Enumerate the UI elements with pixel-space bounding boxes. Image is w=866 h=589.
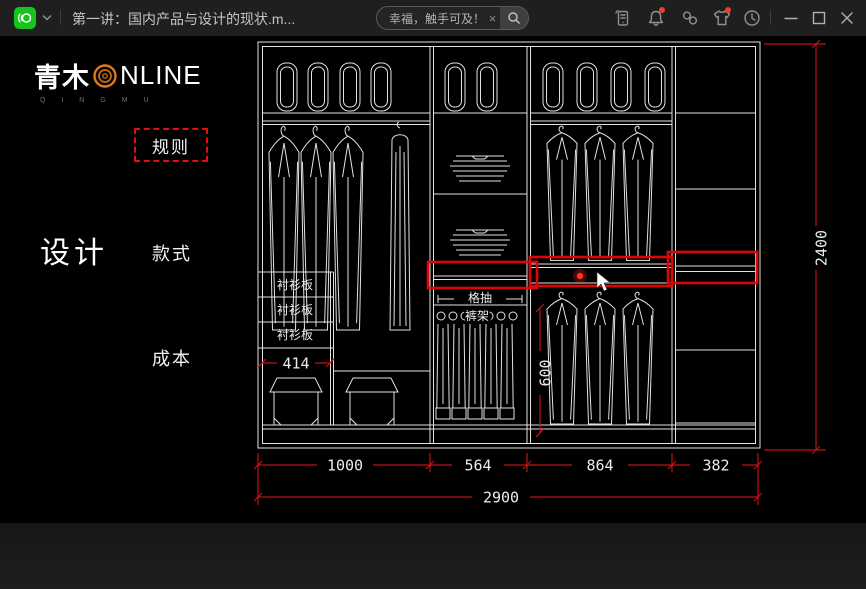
titlebar-divider (770, 10, 771, 25)
window-titlebar: 第一讲：国内产品与设计的现状.m... 幸福，触手可及！ × (0, 0, 866, 37)
brand-text-latin: NLINE (120, 60, 202, 91)
titlebar-divider (60, 10, 61, 25)
search-icon (507, 11, 521, 25)
brand-logo: 青木 NLINE (34, 56, 202, 95)
search-input[interactable]: 幸福，触手可及！ (377, 10, 485, 27)
brand-text-cn: 青木 (34, 56, 90, 95)
menu-design-label: 设计 (40, 228, 108, 272)
minimize-button[interactable] (782, 9, 800, 27)
menu-rule-box: 规则 (134, 128, 208, 162)
video-stage[interactable]: 青木 NLINE Q I N G M U 规则 设计 款式 成本 (0, 36, 866, 523)
app-logo-button[interactable] (14, 7, 36, 29)
tshirt-red-dot (725, 7, 731, 13)
search-button[interactable] (500, 7, 528, 29)
brand-subtitle: Q I N G M U (40, 97, 156, 104)
chevron-down-icon[interactable] (42, 14, 52, 22)
wood-ring-icon (92, 63, 118, 89)
player-control-bar: ◀◀ ▶▶ 19:20/25:16 倍速 (0, 523, 866, 589)
menu-cost-label: 成本 (152, 345, 192, 371)
menu-style-label: 款式 (152, 240, 192, 266)
player-logo-icon (17, 10, 33, 26)
history-clock-icon[interactable] (742, 8, 762, 28)
menu-rule-label: 规则 (152, 133, 190, 158)
maximize-button[interactable] (810, 9, 828, 27)
video-title: 第一讲：国内产品与设计的现状.m... (72, 9, 295, 29)
link-icon[interactable] (680, 8, 700, 28)
bell-red-dot (659, 7, 665, 13)
search-clear-icon[interactable]: × (485, 11, 500, 26)
close-button[interactable] (838, 9, 856, 27)
search-box[interactable]: 幸福，触手可及！ × (376, 6, 529, 30)
cast-phone-icon[interactable] (612, 8, 632, 28)
